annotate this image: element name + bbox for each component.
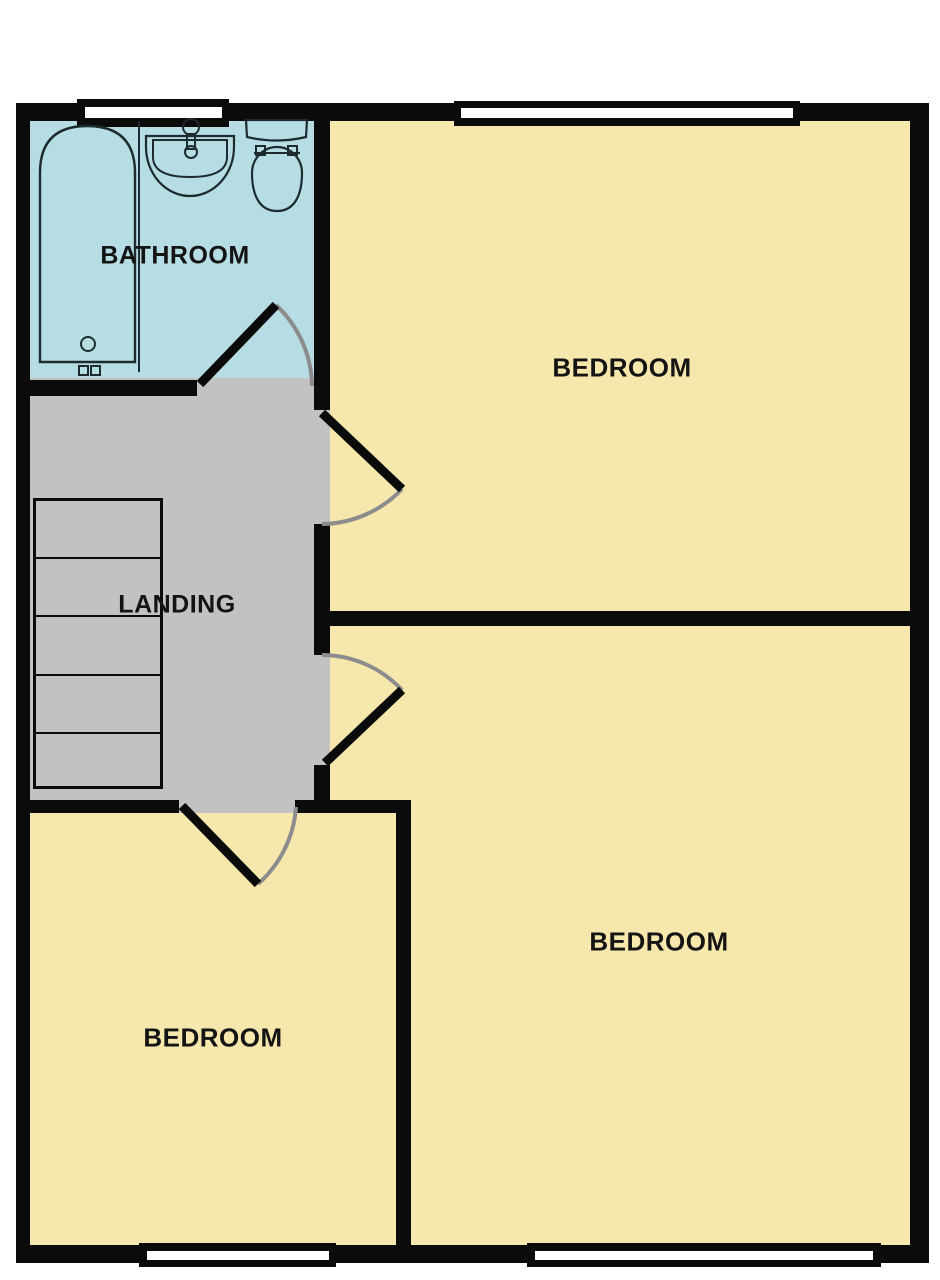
wall-landing-east-upper (314, 121, 330, 410)
window-bathroom-glass (85, 107, 222, 118)
room-label-bedroom-bottom-right: BEDROOM (589, 927, 728, 958)
stair-tread (36, 674, 160, 676)
floorplan-canvas: BATHROOM LANDING BEDROOM BEDROOM BEDROOM (0, 0, 940, 1280)
room-label-landing: LANDING (118, 591, 235, 620)
stair-tread (36, 557, 160, 559)
stair-tread (36, 732, 160, 734)
window-bathroom (77, 99, 229, 127)
room-label-bathroom: BATHROOM (100, 242, 249, 271)
room-label-bedroom-bottom-left: BEDROOM (143, 1023, 282, 1054)
wall-outer-right (910, 103, 929, 1263)
staircase (33, 498, 163, 789)
wall-bedrooms-bottom-divider (396, 800, 411, 1245)
wall-landing-east-mid (314, 524, 330, 655)
wall-bedroom-bl-north-right (295, 800, 411, 813)
room-label-bedroom-top: BEDROOM (552, 353, 691, 384)
window-bedroom-bottom-right-glass (535, 1251, 873, 1260)
window-bedroom-bottom-right (527, 1243, 881, 1267)
wall-bedroom-bl-north-left (16, 800, 179, 813)
window-bedroom-top (454, 101, 800, 126)
wall-bathroom-south (16, 380, 197, 396)
window-bedroom-bottom-left-glass (147, 1251, 329, 1260)
wall-bedrooms-right-divider (316, 611, 910, 626)
wall-outer-left (16, 103, 30, 1263)
window-bedroom-bottom-left (139, 1243, 336, 1267)
window-bedroom-top-glass (461, 108, 793, 118)
